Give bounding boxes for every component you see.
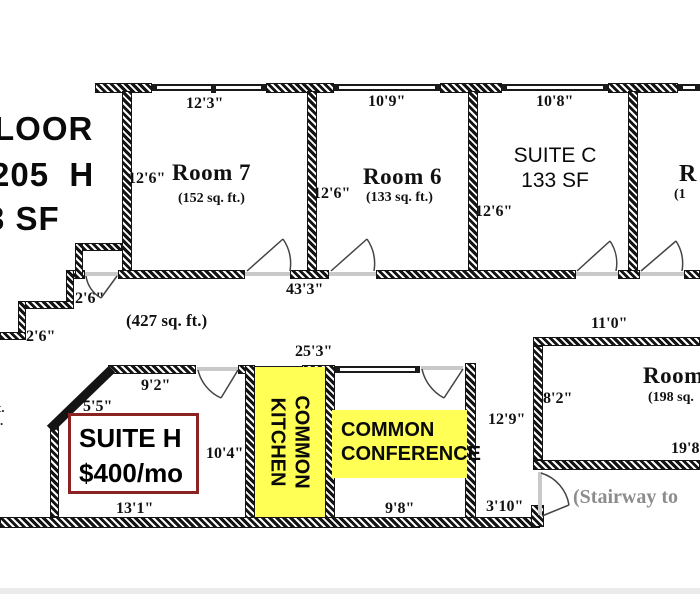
door-arc-roomr xyxy=(641,241,683,271)
scan-artifact-band xyxy=(0,588,700,594)
window-mullion xyxy=(211,84,216,93)
dim-step-26a: 2'6" xyxy=(75,290,104,308)
door-arc-room6 xyxy=(331,239,375,271)
wall-stair-stub xyxy=(531,505,544,527)
wall-room8-bottom xyxy=(533,460,700,470)
room7-name: Room 7 xyxy=(172,160,251,186)
wall-suitec-roomr xyxy=(628,91,638,279)
door-arc-conference xyxy=(422,369,463,398)
conference-label-line2: CONFERENCE xyxy=(341,442,467,466)
dim-passage-310: 3'10" xyxy=(486,498,523,516)
window-room6 xyxy=(334,84,440,91)
conference-label-line1: COMMON xyxy=(341,418,467,442)
common-area-size: (427 sq. ft.) xyxy=(126,311,207,331)
conference-highlight: COMMON CONFERENCE xyxy=(332,410,467,478)
dim-suiteh-92: 9'2" xyxy=(141,377,170,395)
door-arc-room7 xyxy=(247,239,291,271)
suiteh-price: $400/mo xyxy=(79,456,196,491)
roomr-name: R xyxy=(679,161,697,188)
suitec-area: 133 SF xyxy=(500,169,610,194)
dim-common-433: 43'3" xyxy=(286,281,323,299)
wall-notch-v xyxy=(75,243,83,279)
wall-mid-d xyxy=(376,270,576,279)
wall-top-d xyxy=(608,83,678,93)
dim-suitec-top: 10'8" xyxy=(536,93,573,111)
dim-room7-left: 12'6" xyxy=(128,170,165,188)
wall-suiteh-top xyxy=(108,365,196,374)
wall-mid-c xyxy=(290,270,329,279)
wall-top-b xyxy=(266,83,334,93)
wall-mid-b xyxy=(118,270,245,279)
dim-room8-left: 8'2" xyxy=(543,390,572,408)
floor-plan: COMMON CONFERENCE COMMON KITCHEN LOOR 20… xyxy=(0,0,700,594)
roomr-area: (1 xyxy=(674,187,686,203)
wall-room8-top xyxy=(533,337,700,346)
dim-suiteh-131: 13'1" xyxy=(116,500,153,518)
kitchen-label: COMMON KITCHEN xyxy=(255,367,325,517)
window-suite-c xyxy=(502,84,608,91)
wall-step-h2 xyxy=(0,332,26,340)
suitec-label: SUITE C 133 SF xyxy=(500,144,610,194)
wall-mid-e xyxy=(618,270,640,279)
wall-suiteh-left xyxy=(50,425,59,517)
dim-room8-top: 11'0" xyxy=(591,315,627,333)
dim-step-26b: 2'6" xyxy=(26,328,55,346)
kitchen-label-line1: COMMON xyxy=(290,395,314,488)
title-line2: 205 H xyxy=(0,156,94,194)
room6-area: (133 sq. ft.) xyxy=(366,190,433,206)
suiteh-name: SUITE H xyxy=(79,421,196,456)
title-line3: 3 SF xyxy=(0,200,60,238)
dim-room8-198: 19'8 xyxy=(671,440,699,458)
suiteh-price-box: SUITE H $400/mo xyxy=(68,413,199,494)
title-line1: LOOR xyxy=(0,110,93,148)
stairway-note: (Stairway to xyxy=(573,486,678,509)
dim-conference-98: 9'8" xyxy=(385,500,414,518)
door-arc-suitec xyxy=(577,241,617,271)
door-arc-suiteh xyxy=(198,370,238,398)
dim-passage-129: 12'9" xyxy=(488,411,525,429)
room8-name: Room xyxy=(643,363,700,389)
wall-mid-f xyxy=(684,270,700,279)
wall-kitchen-left xyxy=(245,365,255,527)
wall-bottom xyxy=(0,517,540,528)
dim-room6-left: 12'6" xyxy=(313,185,350,203)
kitchen-label-line2: KITCHEN xyxy=(266,395,290,488)
dim-suiteh-104: 10'4" xyxy=(206,445,243,463)
wall-room6-suitec xyxy=(468,91,478,279)
room7-area: (152 sq. ft.) xyxy=(178,191,245,207)
dim-suitec-left: 12'6" xyxy=(475,203,512,221)
edge-fragment-2: . xyxy=(0,413,3,429)
wall-step-h1 xyxy=(18,301,74,309)
dim-room6-top: 10'9" xyxy=(368,93,405,111)
dim-room7-top: 12'3" xyxy=(186,95,223,113)
room8-area: (198 sq. xyxy=(648,390,694,406)
window-room7 xyxy=(152,84,266,91)
room6-name: Room 6 xyxy=(363,164,442,190)
suitec-name: SUITE C xyxy=(500,144,610,169)
dim-common-253: 25'3" xyxy=(295,343,332,361)
wall-room8-left xyxy=(533,346,543,460)
window-room-partial xyxy=(678,84,700,91)
window-conference xyxy=(335,366,420,373)
door-arc-stairway xyxy=(541,473,569,516)
